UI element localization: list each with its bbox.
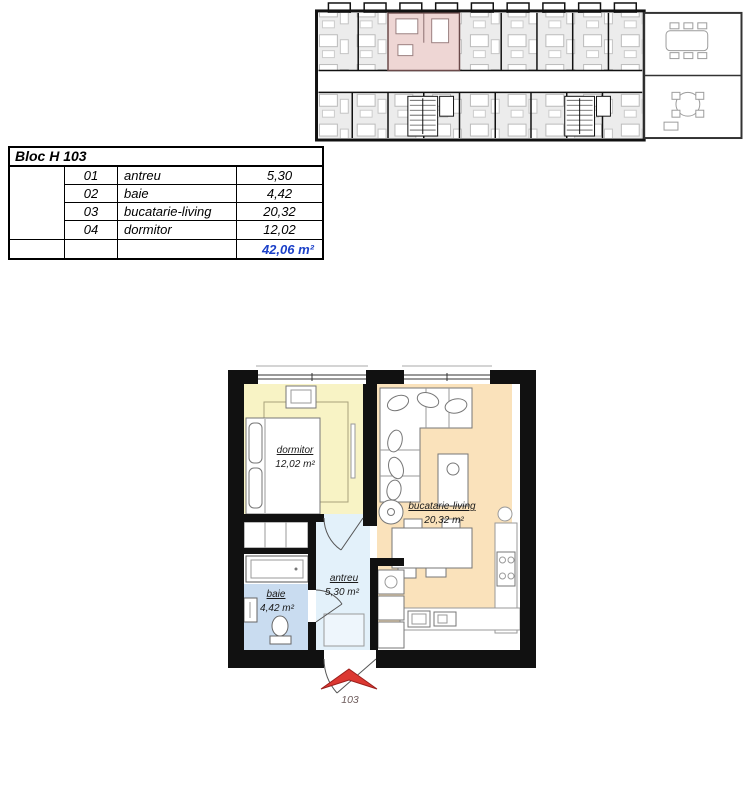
room-number: 02: [64, 185, 117, 203]
room-area-antreu: 5,30 m²: [325, 587, 360, 598]
radiator-icon: [351, 424, 355, 478]
room-name: dormitor: [117, 221, 236, 239]
room-name: baie: [117, 185, 236, 203]
table-cell-blank: [117, 239, 236, 258]
terrace-dining-table-icon: [666, 23, 708, 59]
oven-icon: [408, 611, 430, 627]
table-cell-blank: [64, 239, 117, 258]
building-overview-plan: [313, 1, 746, 142]
table-cell-blank: [10, 185, 64, 203]
area-table: Bloc H 103 01 antreu 5,30 02 baie 4,42 0…: [8, 146, 324, 260]
coffee-table-icon: [438, 454, 468, 506]
room-number: 03: [64, 203, 117, 221]
floor-lamp-icon: [379, 500, 403, 524]
apartment-plan: 103 dormitor 12,02 m² bucatarie-living 2…: [228, 362, 536, 707]
room-label-antreu: antreu: [330, 573, 359, 584]
table-cell-blank: [10, 167, 64, 185]
kitchen-sink-icon: [434, 612, 456, 626]
washbasin-icon: [244, 598, 257, 622]
room-area-baie: 4,42 m²: [260, 603, 295, 614]
room-area: 20,32: [236, 203, 322, 221]
room-label-dormitor: dormitor: [277, 445, 314, 456]
doormat-icon: [324, 614, 364, 646]
entrance-arrow-icon: [321, 669, 377, 689]
washing-machine-icon: [378, 570, 404, 648]
corridor: [318, 71, 642, 93]
room-number: 01: [64, 167, 117, 185]
room-number: 04: [64, 221, 117, 239]
room-label-baie: baie: [267, 589, 286, 600]
room-area-bucatarie: 20,32 m²: [423, 515, 464, 526]
cooktop-icon: [497, 552, 515, 586]
table-cell-blank: [10, 203, 64, 221]
nightstand-icon: [286, 386, 316, 408]
table-cell-blank: [10, 239, 64, 258]
terrace-section: [644, 13, 741, 138]
bathtub-icon: [246, 556, 308, 582]
room-name: bucatarie-living: [117, 203, 236, 221]
room-label-bucatarie: bucatarie-living: [408, 501, 476, 512]
wardrobe-icon: [244, 522, 308, 548]
room-area-dormitor: 12,02 m²: [275, 459, 315, 470]
entrance-unit-number: 103: [341, 694, 359, 706]
room-area: 4,42: [236, 185, 322, 203]
room-name: antreu: [117, 167, 236, 185]
highlighted-unit-overview: [388, 13, 459, 71]
floorplan-sheet: Bloc H 103 01 antreu 5,30 02 baie 4,42 0…: [0, 0, 749, 787]
room-area: 5,30: [236, 167, 322, 185]
total-area: 42,06 m²: [236, 239, 322, 258]
room-area: 12,02: [236, 221, 322, 239]
table-title: Bloc H 103: [10, 148, 322, 167]
table-cell-blank: [10, 221, 64, 239]
